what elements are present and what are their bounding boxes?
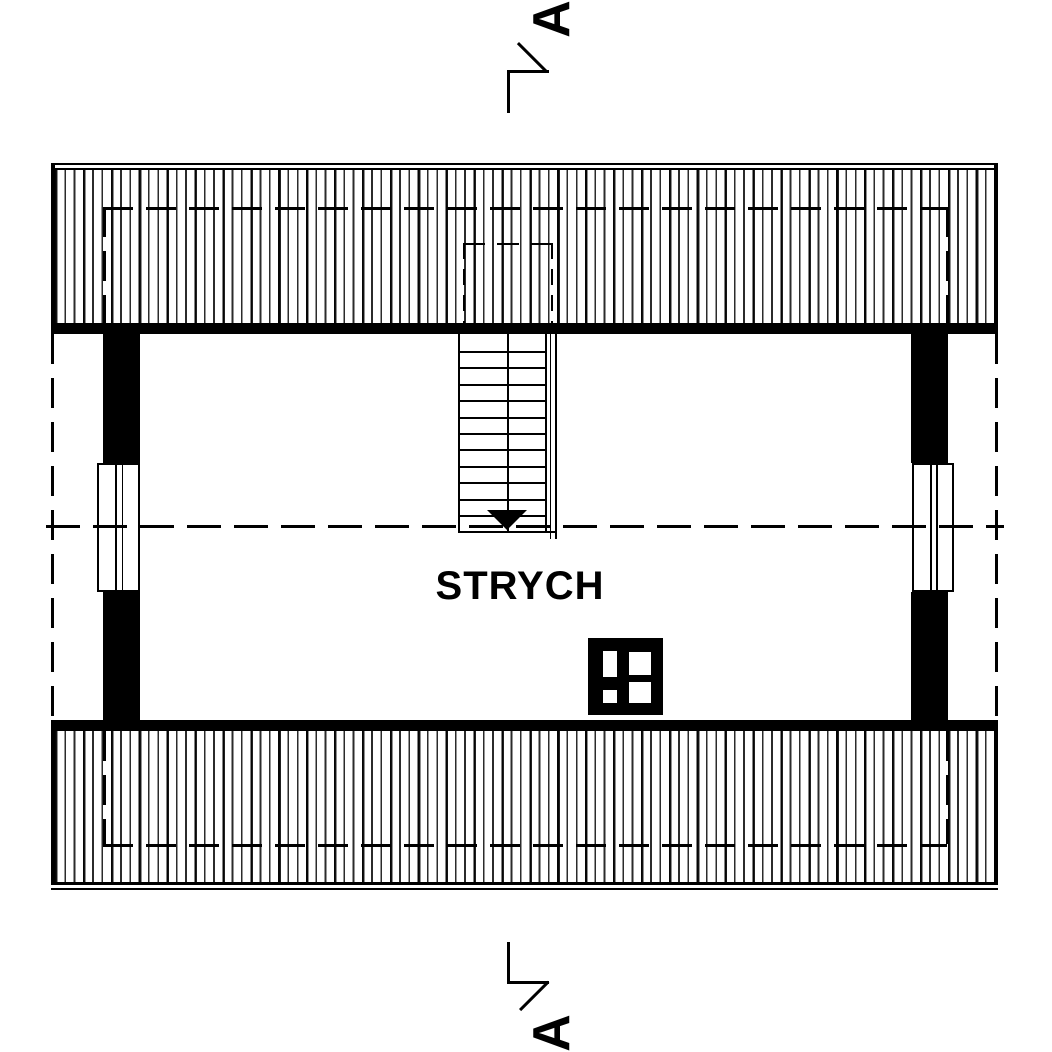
- roof-overhang-dash-bottom-right: [946, 731, 949, 844]
- stair-edge-right: [555, 334, 557, 539]
- stairwell-opening-dash-head: [463, 243, 553, 245]
- room-label: STRYCH: [400, 564, 640, 608]
- stairs-symbol: [458, 334, 557, 533]
- knee-wall-bottom: [55, 720, 994, 731]
- roof-plane-bottom: [51, 720, 998, 885]
- chimney-flue: [603, 651, 617, 677]
- chimney-flue: [629, 682, 651, 703]
- window-right-glass-line: [930, 465, 932, 590]
- section-break-line-bottom: [507, 981, 549, 984]
- window-left-glass-line: [115, 465, 117, 590]
- stair-tread: [460, 384, 545, 386]
- wall-right-upper: [911, 334, 948, 463]
- stair-tread: [460, 367, 545, 369]
- roof-overhang-dash-bottom: [103, 844, 947, 847]
- section-letter-top: A: [524, 0, 580, 44]
- stair-tread: [460, 449, 545, 451]
- window-right: [912, 463, 954, 592]
- window-left: [97, 463, 140, 592]
- chimney-symbol: [588, 638, 663, 715]
- chimney-flue: [603, 690, 617, 703]
- wall-left-lower: [103, 592, 140, 720]
- stair-edge-bottom: [458, 531, 557, 533]
- roof-hatch-top: [55, 168, 994, 325]
- window-right-glass-line: [936, 465, 938, 590]
- stair-tread: [460, 499, 545, 501]
- stairwell-opening-dash-right: [551, 243, 553, 323]
- wall-left-upper: [103, 334, 140, 463]
- roof-overhang-dash-top: [103, 207, 947, 210]
- stairwell-opening-dash-left: [463, 243, 465, 323]
- window-left-glass-line: [122, 465, 124, 590]
- roof-plane-top: [51, 163, 998, 334]
- knee-wall-top: [55, 323, 994, 334]
- roof-overhang-dash-top-left: [103, 207, 106, 323]
- roof-eave-edge-line: [51, 888, 998, 890]
- stair-handrail-line: [550, 334, 552, 539]
- stair-tread: [460, 466, 545, 468]
- roof-overhang-dash-top-right: [946, 207, 949, 323]
- stair-handrail-line: [545, 334, 547, 531]
- section-break-diagonal-bottom: [519, 981, 549, 1011]
- section-letter-bottom: A: [524, 1008, 580, 1052]
- stair-tread: [460, 351, 545, 353]
- section-cut-line-top: [507, 71, 510, 113]
- ridge-centerline-dash: [46, 525, 1004, 528]
- floor-plan-canvas: A: [0, 0, 1052, 1052]
- stair-tread: [460, 433, 545, 435]
- stair-tread: [460, 417, 545, 419]
- section-cut-line-bottom: [507, 942, 510, 984]
- section-break-line-top: [507, 70, 549, 73]
- roof-overhang-dash-bottom-left: [103, 731, 106, 844]
- wall-right-lower: [911, 592, 948, 720]
- section-break-diagonal-top: [517, 42, 548, 73]
- stair-tread: [460, 400, 545, 402]
- chimney-flue: [629, 652, 651, 675]
- stair-tread: [460, 482, 545, 484]
- roof-hatch-bottom: [55, 731, 994, 882]
